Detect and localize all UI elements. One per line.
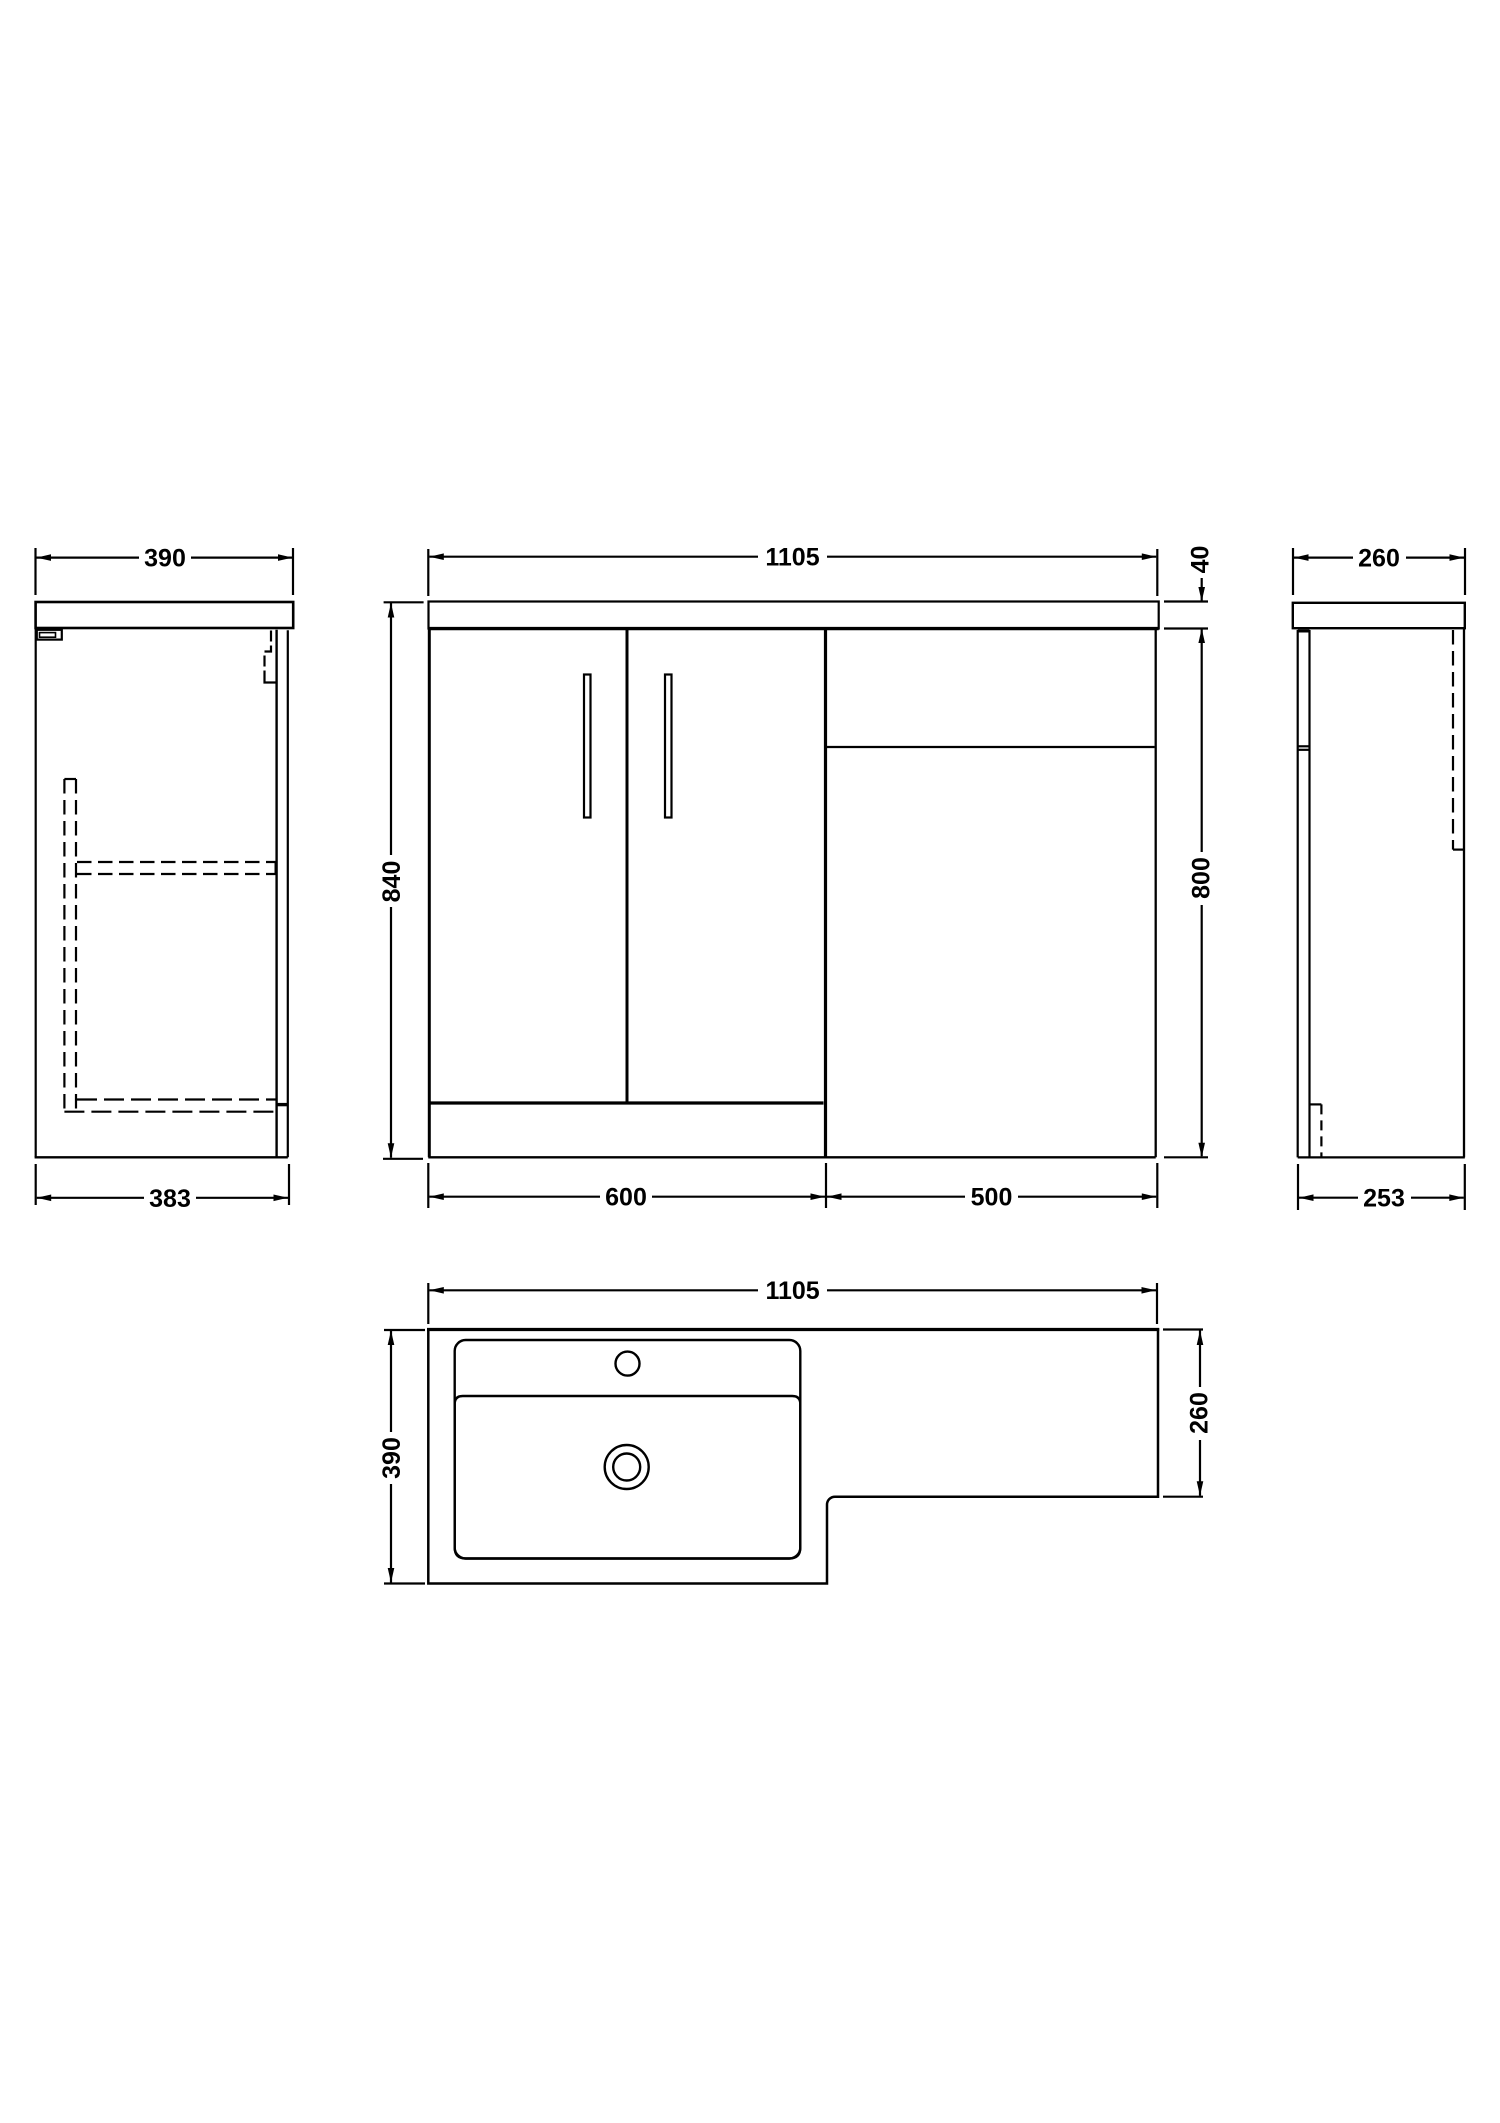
svg-text:1105: 1105: [765, 544, 819, 572]
svg-text:500: 500: [971, 1184, 1013, 1212]
svg-text:840: 840: [378, 861, 406, 903]
svg-text:383: 383: [149, 1185, 191, 1213]
svg-text:800: 800: [1188, 857, 1216, 899]
svg-text:1105: 1105: [765, 1277, 819, 1305]
svg-text:260: 260: [1358, 545, 1400, 573]
svg-text:253: 253: [1363, 1185, 1405, 1213]
svg-text:390: 390: [144, 545, 186, 573]
svg-text:260: 260: [1186, 1392, 1214, 1434]
svg-text:40: 40: [1187, 546, 1215, 574]
svg-text:600: 600: [605, 1184, 647, 1212]
svg-text:390: 390: [378, 1437, 406, 1479]
